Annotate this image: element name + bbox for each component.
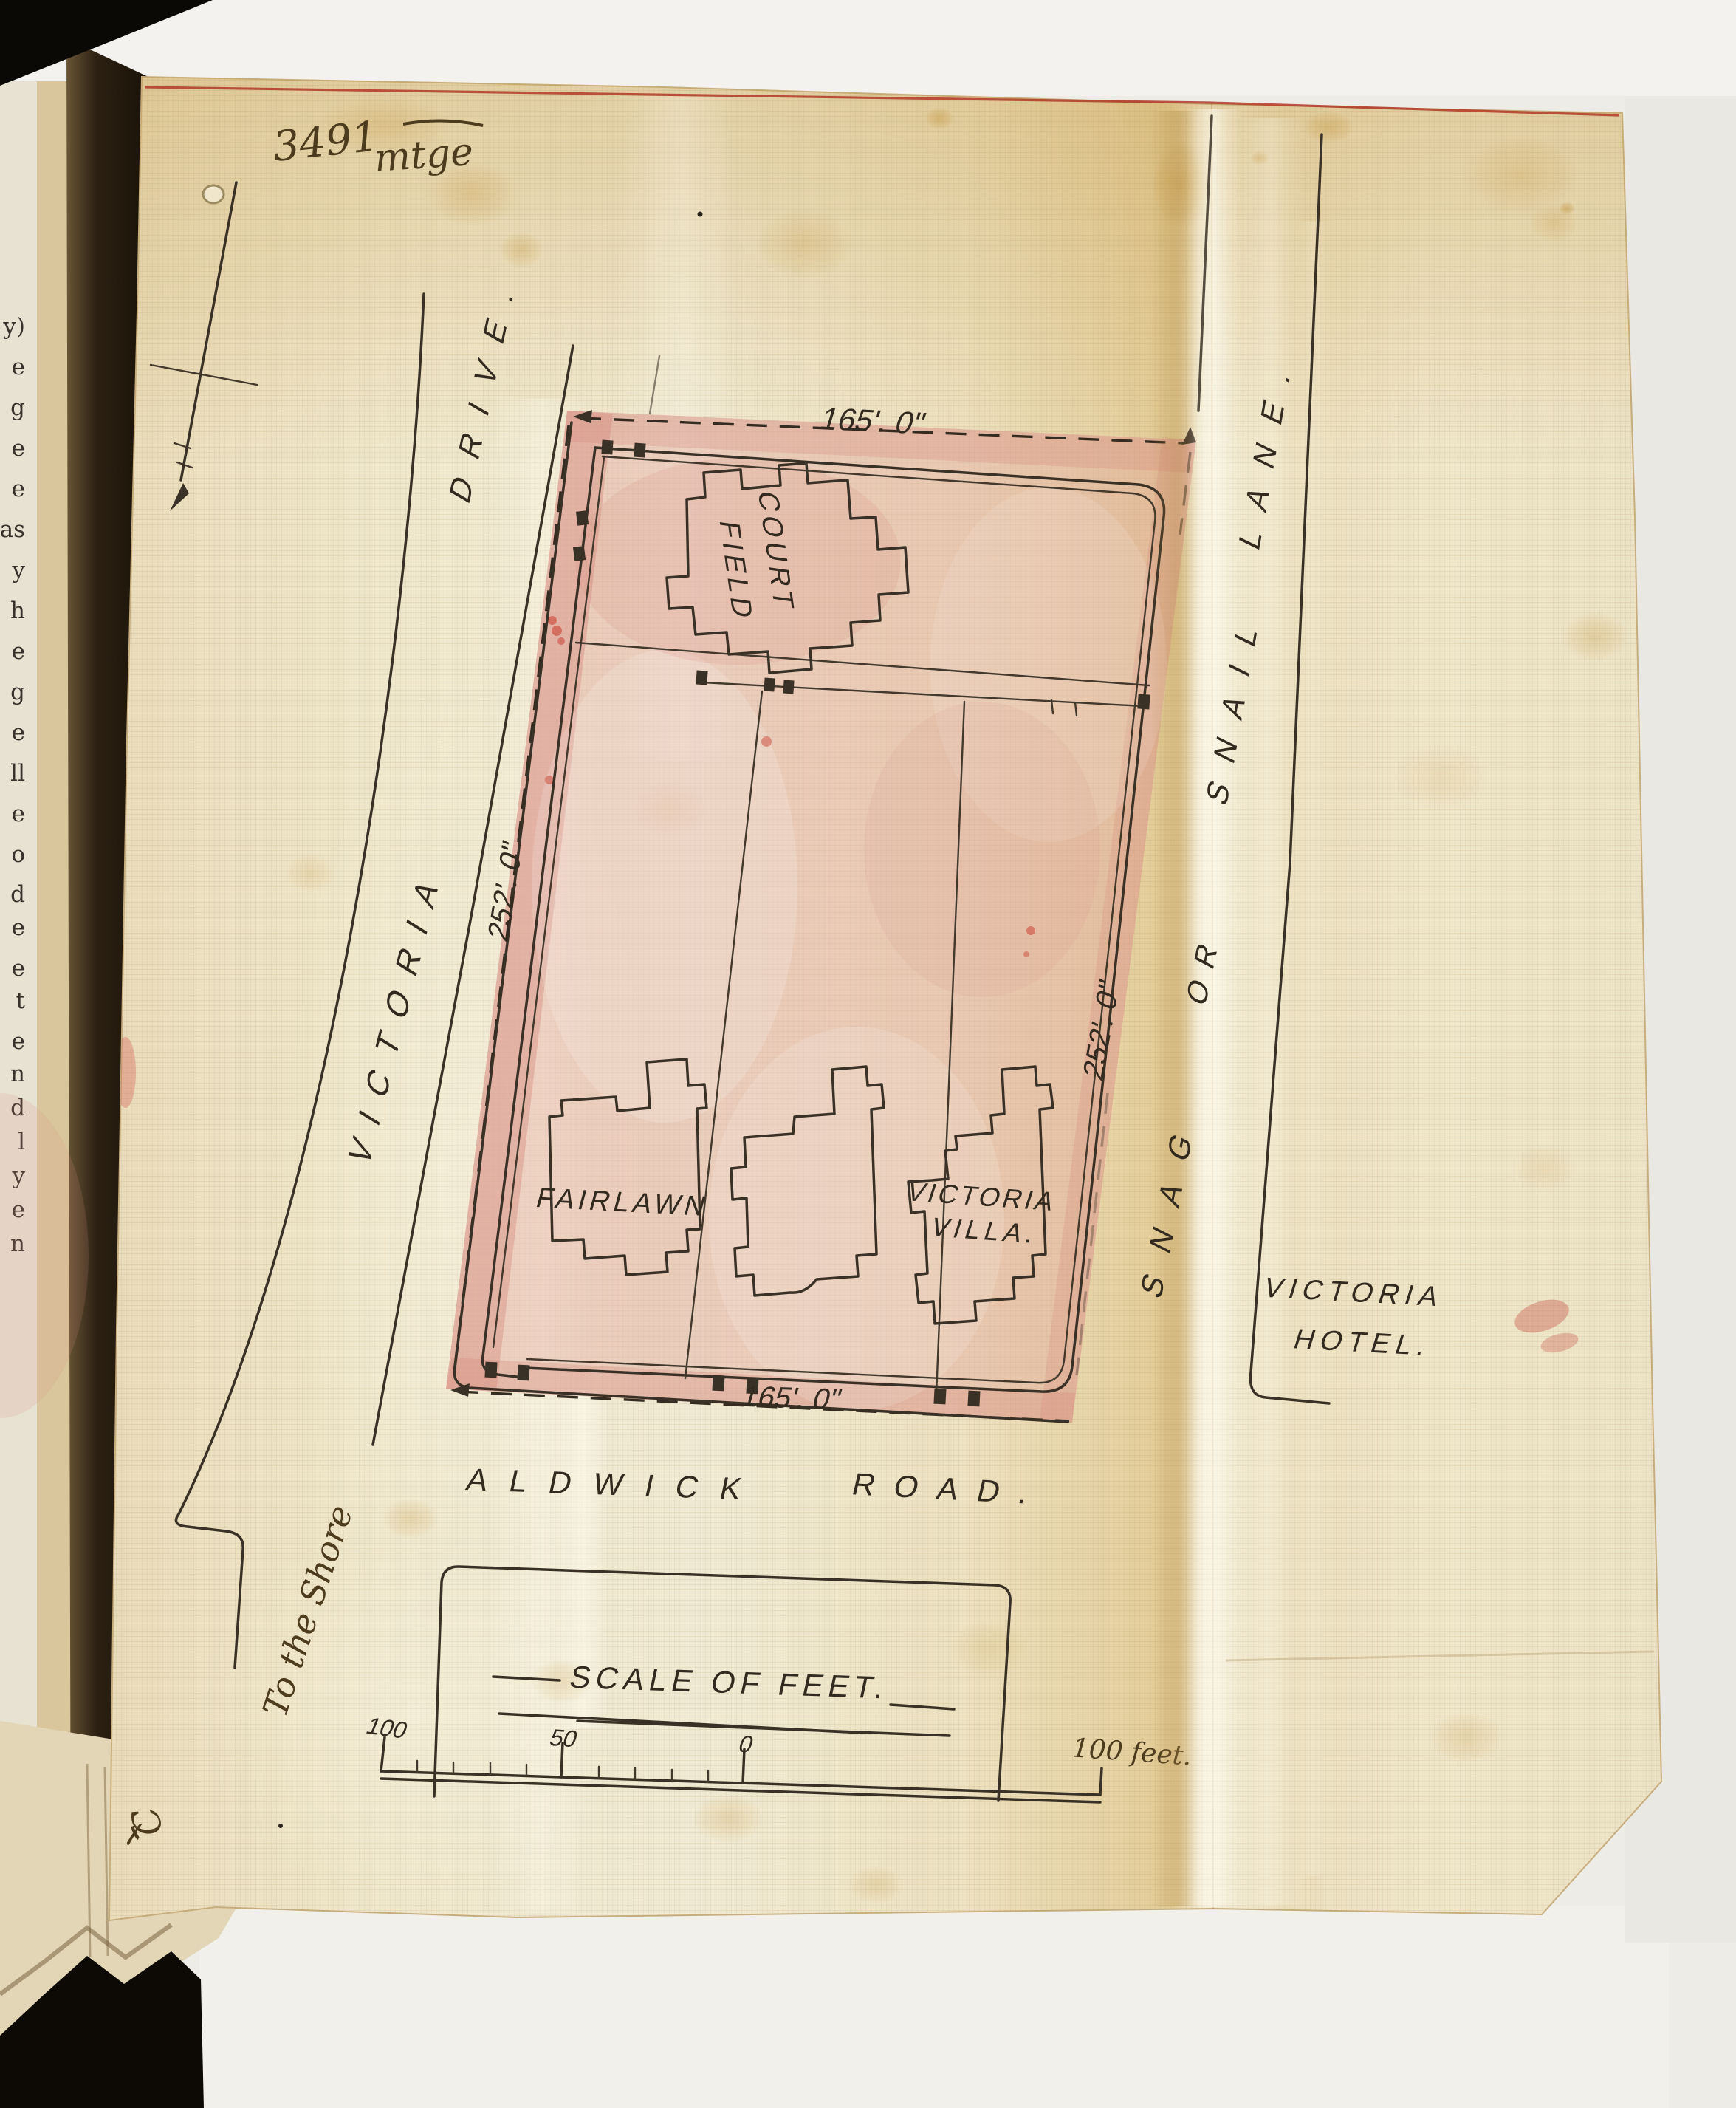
edge-letter: as (0, 516, 25, 543)
edge-letter: n (10, 1061, 25, 1087)
dimension-bottom: 165'. 0" (738, 1380, 845, 1417)
edge-letter: e (12, 1028, 25, 1055)
edge-letter: e (12, 914, 25, 941)
edge-letter: h (10, 598, 25, 624)
facing-page-edge (37, 81, 71, 1891)
edge-letter: g (10, 679, 25, 705)
edge-letter: e (12, 719, 25, 746)
edge-letter: e (12, 354, 25, 380)
dimension-top: 165'. 0" (816, 401, 930, 441)
edge-letter: y (11, 557, 25, 584)
edge-letter: y) (2, 313, 25, 340)
edge-letter: d (10, 881, 25, 908)
edge-letter: e (12, 476, 25, 502)
file-word-annotation: mtge (373, 130, 475, 181)
edge-letter: ll (10, 760, 25, 787)
scanned-plan-page: y) e g e e as y h e g e ll e o d e e t e… (0, 0, 1736, 2108)
edge-letter: e (12, 801, 25, 827)
edge-letter: e (12, 435, 25, 462)
edge-letter: e (12, 638, 25, 665)
edge-letter: o (11, 841, 25, 868)
edge-letter: t (16, 988, 26, 1014)
backdrop-bottom-paper (199, 1906, 1669, 2108)
plan-canvas: y) e g e e as y h e g e ll e o d e e t e… (0, 0, 1736, 2108)
edge-letter: g (10, 394, 25, 421)
edge-letter: e (12, 955, 25, 982)
